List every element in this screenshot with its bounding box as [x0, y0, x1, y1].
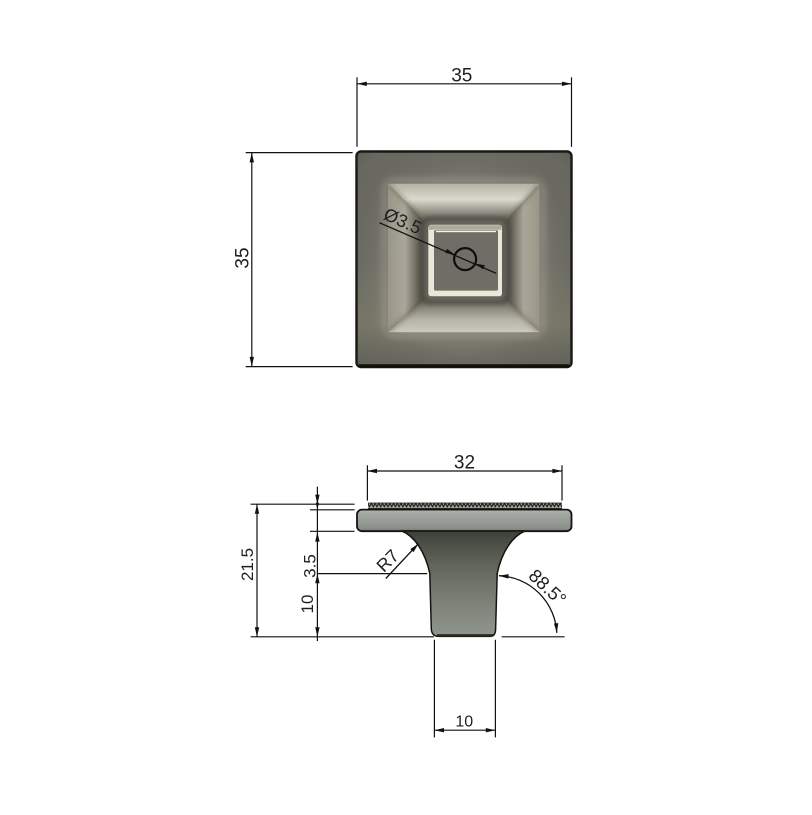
svg-text:10: 10 [298, 595, 317, 614]
svg-text:10: 10 [455, 713, 473, 730]
svg-text:35: 35 [451, 65, 472, 86]
svg-text:32: 32 [454, 452, 475, 473]
svg-text:3.5: 3.5 [300, 554, 319, 578]
svg-text:35: 35 [233, 247, 254, 268]
svg-text:21.5: 21.5 [238, 548, 257, 581]
